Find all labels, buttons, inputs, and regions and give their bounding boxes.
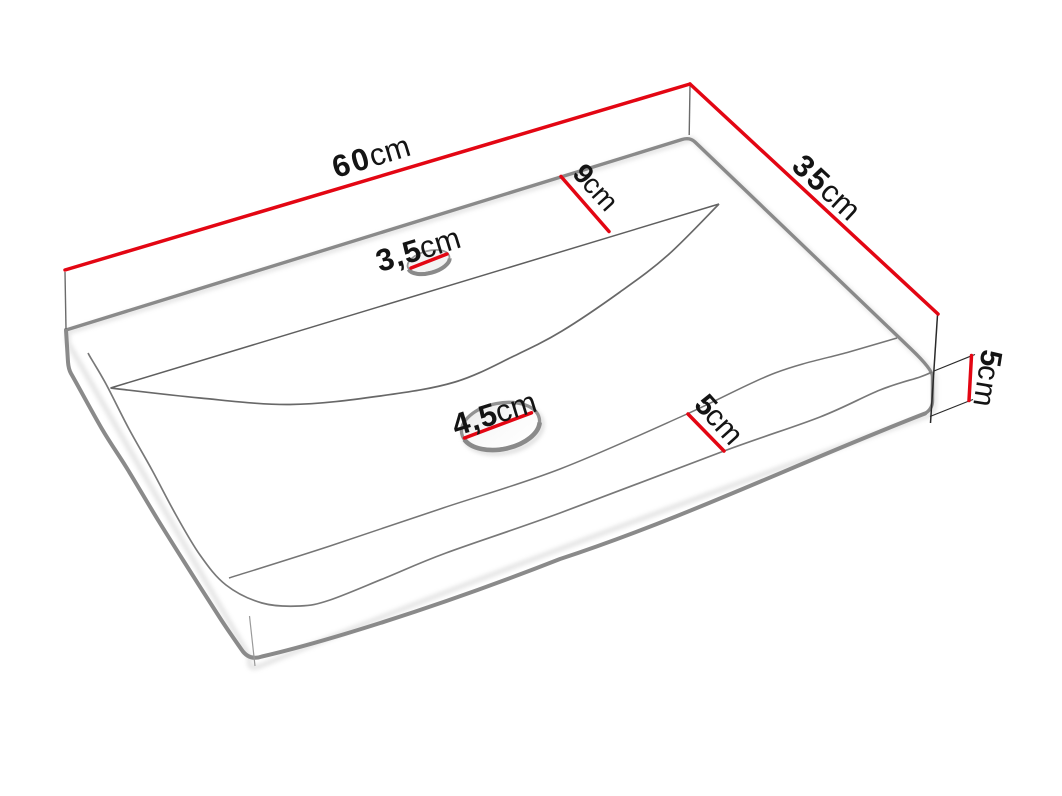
svg-text:35cm: 35cm (786, 147, 868, 227)
svg-text:5cm: 5cm (688, 388, 750, 451)
svg-text:9cm: 9cm (567, 157, 625, 216)
svg-text:60cm: 60cm (328, 128, 415, 185)
